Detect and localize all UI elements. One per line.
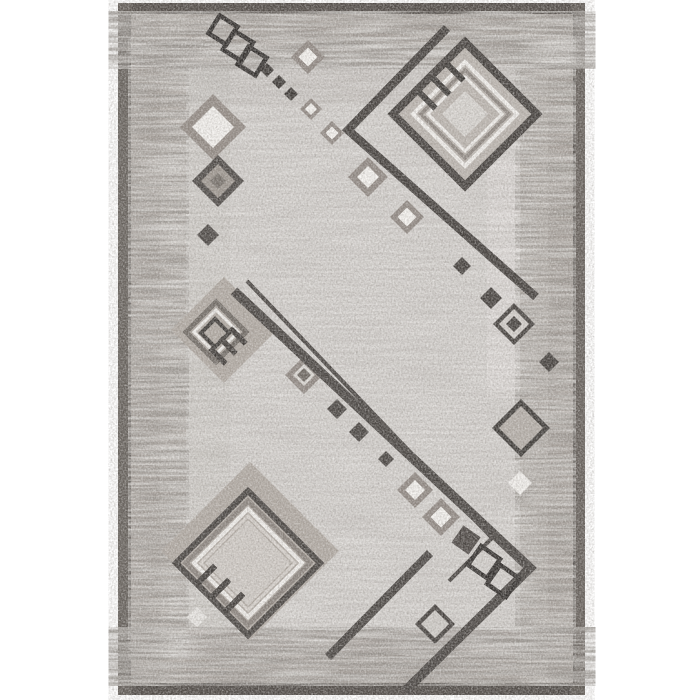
rug-image <box>0 0 700 700</box>
photo-grain <box>118 3 585 695</box>
product-photo <box>0 0 700 700</box>
grain-light <box>118 3 585 695</box>
